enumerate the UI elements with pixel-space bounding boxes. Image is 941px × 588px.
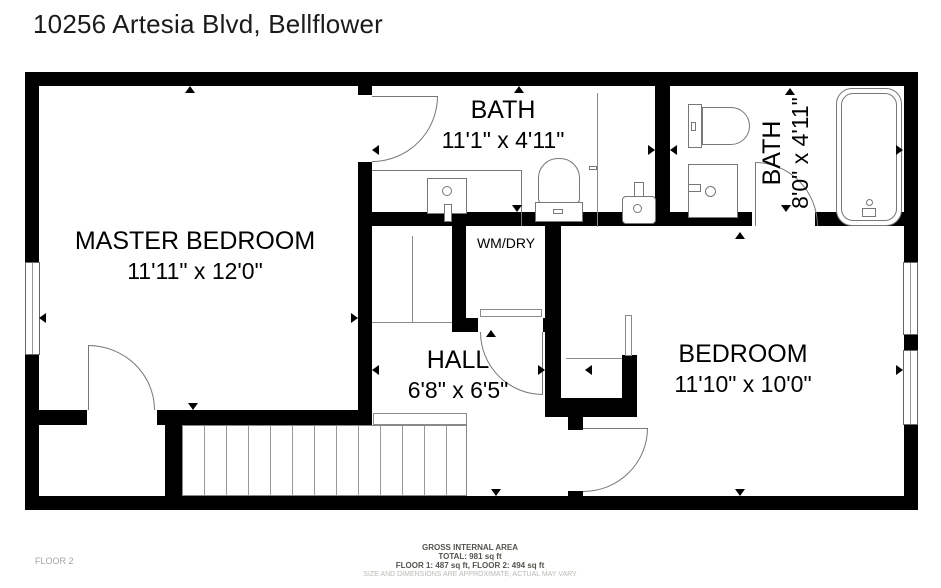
area-disclaimer: SIZE AND DIMENSIONS ARE APPROXIMATE, ACT… [363,570,576,579]
dimension-arrow [538,365,545,375]
wall-laundry-south-left [452,318,478,332]
toilet-bowl [538,158,580,204]
room-name: HALL [408,344,509,376]
dimension-arrow [512,205,522,212]
dimension-arrow [585,365,592,375]
tub-knob [866,199,873,206]
floor-plan: MASTER BEDROOM 11'11" x 12'0" BATH 11'1"… [25,72,918,510]
dimension-arrow [735,232,745,239]
wall-bedroom-door-jamb-top [568,417,583,430]
area-summary: GROSS INTERNAL AREA TOTAL: 981 sq ft FLO… [363,543,576,579]
area-total: TOTAL: 981 sq ft [363,552,576,561]
room-dimensions: 8'0" x 4'11" [787,88,813,218]
closet-track-line [566,358,622,359]
dimension-arrow [372,145,379,155]
floorplan-page: { "title": "10256 Artesia Blvd, Bellflow… [0,0,941,588]
room-dimensions: 11'11" x 12'0" [75,257,315,286]
room-name: MASTER BEDROOM [75,225,315,257]
stair-landing [373,413,467,425]
window [903,350,918,425]
basin-faucet [634,182,644,197]
sink-drain [442,186,452,196]
dimension-arrow [514,86,524,93]
window-mullion [32,263,33,354]
wall-outer-top [25,72,918,86]
room-dimensions: 11'10" x 10'0" [674,370,811,399]
wall-closet-east [165,425,182,496]
area-floors: FLOOR 1: 487 sq ft, FLOOR 2: 494 sq ft [363,561,576,570]
floor-number-label: FLOOR 2 [35,556,74,566]
dimension-arrow [372,365,379,375]
wall-bedroom-closet-right [622,355,637,417]
room-dimensions: 6'8" x 6'5" [408,376,509,405]
shower-partition [597,93,598,227]
sink-faucet [688,184,701,192]
sink-faucet [444,204,452,222]
room-name: BEDROOM [674,338,811,370]
dimension-arrow [188,403,198,410]
window-mullion [910,351,911,424]
door-master-closet [88,345,155,410]
sink-drain [705,186,716,197]
dimension-arrow [351,313,358,323]
stairwell-line-mid [412,236,413,322]
room-label-bath-main: BATH 11'1" x 4'11" [442,94,565,155]
dimension-arrow [670,145,677,155]
dimension-arrow [39,313,46,323]
wall-master-east [358,162,372,425]
bifold-door [480,309,542,317]
toilet-button [691,122,696,131]
toilet-button [553,209,563,214]
dimension-arrow [896,145,903,155]
dimension-arrow [735,489,745,496]
room-label-bedroom: BEDROOM 11'10" x 10'0" [674,338,811,399]
dimension-arrow [896,365,903,375]
window [25,262,40,355]
toilet-bowl [702,107,750,145]
room-label-laundry: WM/DRY [477,235,535,251]
dimension-arrow [491,489,501,496]
wall-laundry-west [452,226,466,332]
dimension-arrow [185,86,195,93]
wall-master-south-left [25,410,87,425]
room-label-master-bedroom: MASTER BEDROOM 11'11" x 12'0" [75,225,315,286]
partition-handle [589,166,597,170]
window [903,262,918,335]
staircase [182,425,467,496]
dimension-arrow [486,330,496,337]
wall-outer-bottom [25,496,918,510]
room-name: BATH [758,88,787,218]
wall-master-south-right [157,410,372,425]
tub-faucet [862,208,876,217]
stairwell-line-bottom [372,322,452,323]
window-mullion [910,263,911,334]
room-label-bath-ensuite: BATH 8'0" x 4'11" [758,88,814,218]
closet-door-panel [625,315,632,356]
door-bath-main [372,96,438,162]
wall-between-baths [655,86,670,226]
wall-bedroom-door-jamb-bottom [568,491,583,496]
room-name: BATH [442,94,565,126]
wall-laundry-south-right [543,318,561,332]
room-dimensions: 11'1" x 4'11" [442,126,565,155]
door-bedroom [583,428,648,492]
address-title: 10256 Artesia Blvd, Bellflower [33,9,383,40]
basin-drain [633,204,642,213]
area-heading: GROSS INTERNAL AREA [363,543,576,552]
room-label-hall: HALL 6'8" x 6'5" [408,344,509,405]
wall-master-east-upper [358,86,372,95]
dimension-arrow [648,145,655,155]
